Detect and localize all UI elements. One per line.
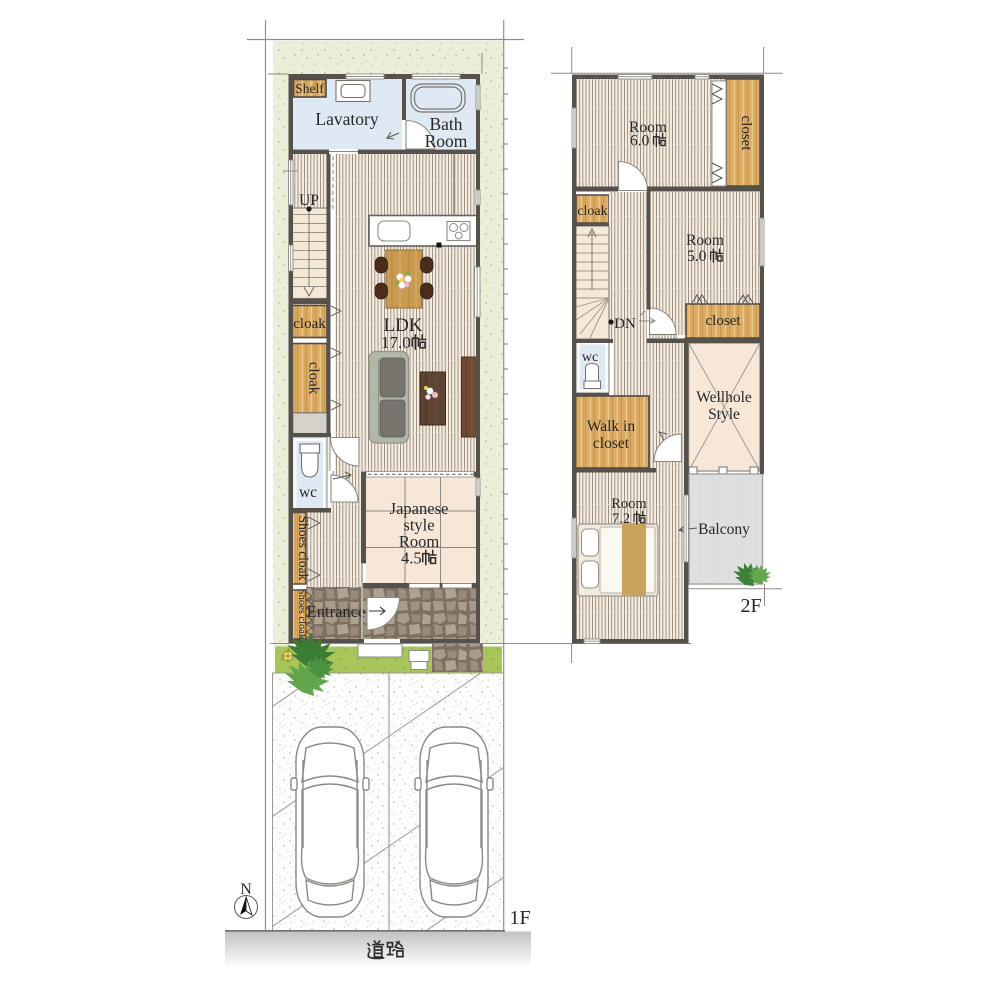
svg-text:cloak: cloak	[293, 316, 326, 332]
svg-text:Room: Room	[611, 496, 647, 512]
svg-text:Style: Style	[708, 406, 740, 423]
svg-text:Room: Room	[686, 232, 724, 249]
svg-text:5.0: 5.0	[687, 248, 707, 265]
svg-text:Shoes cloak: Shoes cloak	[296, 589, 307, 640]
svg-text:Entrance: Entrance	[307, 602, 366, 621]
svg-text:N: N	[240, 881, 252, 898]
svg-text:Wellhole: Wellhole	[696, 389, 752, 406]
svg-text:closet: closet	[593, 435, 630, 452]
svg-text:17.0: 17.0	[381, 333, 411, 352]
svg-text:cloak: cloak	[306, 362, 322, 395]
svg-text:4.5: 4.5	[401, 549, 422, 568]
svg-text:Shelf: Shelf	[295, 81, 324, 96]
svg-text:cloak: cloak	[577, 204, 607, 219]
svg-text:Shoes cloak: Shoes cloak	[296, 516, 311, 581]
svg-text:Walk in: Walk in	[587, 418, 636, 435]
svg-text:Room: Room	[425, 131, 468, 151]
svg-text:closet: closet	[738, 116, 754, 152]
svg-text:DN: DN	[614, 316, 636, 332]
svg-text:wc: wc	[299, 484, 317, 501]
svg-text:2F: 2F	[740, 595, 761, 617]
svg-text:closet: closet	[706, 313, 742, 329]
svg-text:wc: wc	[582, 350, 598, 365]
svg-text:Lavatory: Lavatory	[315, 109, 378, 129]
svg-text:1F: 1F	[509, 907, 530, 929]
svg-text:UP: UP	[299, 192, 319, 209]
svg-text:6.0: 6.0	[630, 133, 650, 150]
svg-text:Balcony: Balcony	[698, 521, 750, 538]
